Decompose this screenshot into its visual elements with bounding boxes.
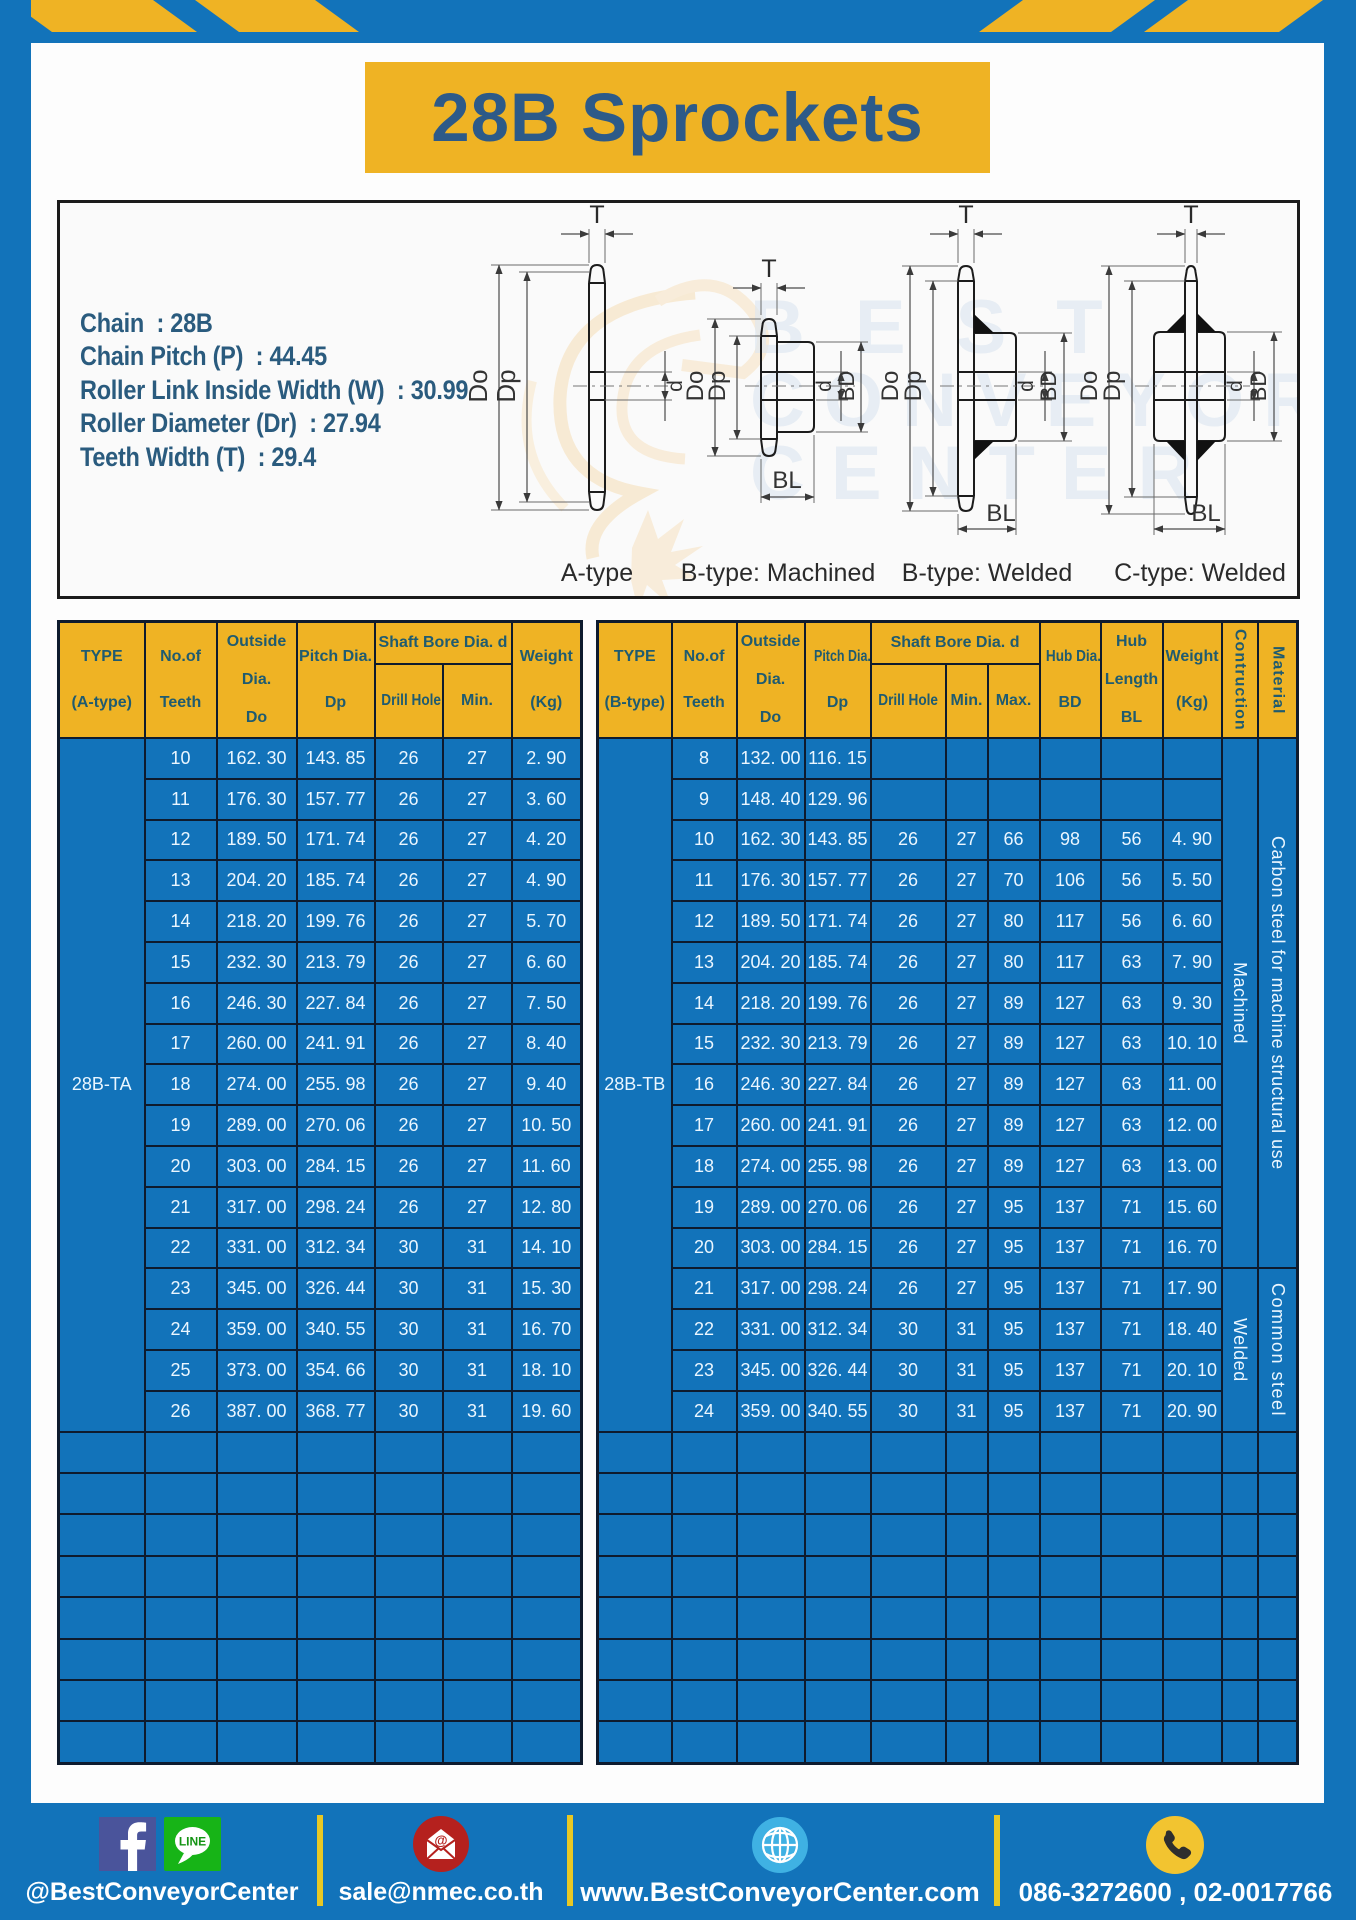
svg-text:A-type: A-type <box>561 559 633 587</box>
svg-text:Dp: Dp <box>900 371 927 402</box>
svg-text:d: d <box>1015 380 1038 392</box>
svg-text:BD: BD <box>1036 371 1061 402</box>
svg-text:BL: BL <box>1191 500 1220 527</box>
svg-text:C-type: Welded: C-type: Welded <box>1114 559 1286 587</box>
svg-text:@: @ <box>434 1833 447 1848</box>
svg-text:Dp: Dp <box>704 371 731 402</box>
svg-text:Dp: Dp <box>1099 371 1126 402</box>
svg-text:d: d <box>1224 380 1247 392</box>
svg-text:BL: BL <box>986 500 1015 527</box>
svg-text:d: d <box>813 380 836 392</box>
svg-text:T: T <box>761 255 776 283</box>
svg-text:Dp: Dp <box>491 369 521 402</box>
svg-text:BD: BD <box>1246 371 1271 402</box>
svg-text:BL: BL <box>772 467 801 494</box>
svg-text:T: T <box>1183 203 1198 229</box>
svg-text:B-type: Welded: B-type: Welded <box>902 559 1072 587</box>
svg-text:T: T <box>589 203 604 229</box>
svg-text:BD: BD <box>834 371 859 402</box>
svg-text:B-type: Machined: B-type: Machined <box>681 559 876 587</box>
svg-text:LINE: LINE <box>179 1835 206 1849</box>
svg-text:T: T <box>958 203 973 229</box>
